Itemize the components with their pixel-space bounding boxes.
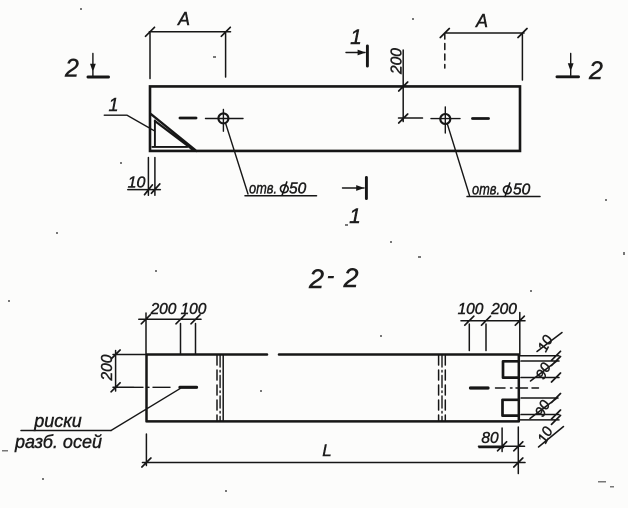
svg-text:A: A <box>475 11 488 31</box>
svg-text:1: 1 <box>108 95 118 115</box>
svg-text:отв.: отв. <box>249 181 277 198</box>
svg-text:2: 2 <box>342 263 358 293</box>
svg-text:2: 2 <box>64 55 79 83</box>
svg-text:200: 200 <box>389 48 406 75</box>
svg-text:100: 100 <box>458 301 484 318</box>
svg-text:200: 200 <box>490 301 517 318</box>
svg-text:2: 2 <box>308 264 324 294</box>
svg-text:200: 200 <box>99 354 116 381</box>
svg-text:отв.: отв. <box>472 182 500 199</box>
svg-text:100: 100 <box>181 301 207 318</box>
svg-text:1: 1 <box>349 205 361 228</box>
svg-text:10: 10 <box>128 175 146 192</box>
svg-text:A: A <box>177 9 190 29</box>
svg-text:80: 80 <box>481 430 499 447</box>
svg-text:разб. осей: разб. осей <box>14 432 102 452</box>
svg-text:50: 50 <box>513 182 531 199</box>
svg-text:50: 50 <box>289 181 307 198</box>
svg-text:-: - <box>327 263 334 288</box>
svg-text:1: 1 <box>350 26 362 49</box>
svg-text:200: 200 <box>150 301 177 318</box>
svg-text:L: L <box>322 441 331 460</box>
svg-text:риски: риски <box>33 411 82 431</box>
svg-text:2: 2 <box>588 57 603 85</box>
